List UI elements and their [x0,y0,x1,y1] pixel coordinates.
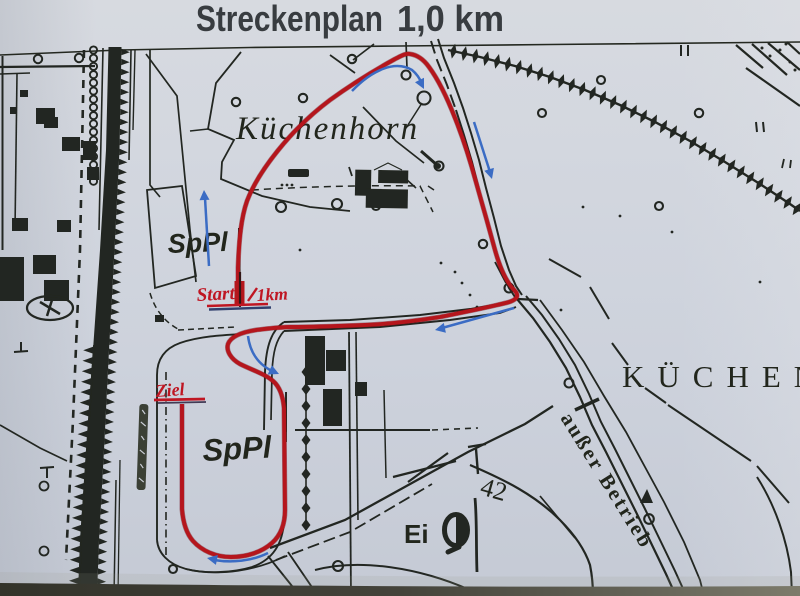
svg-text:KÜCHEN: KÜCHEN [622,359,800,394]
svg-text:SpPl: SpPl [167,227,229,259]
svg-text:Ziel: Ziel [154,379,185,401]
svg-text:Küchenhorn: Küchenhorn [235,111,419,147]
svg-text:Ei: Ei [404,519,429,549]
svg-text:Streckenplan: Streckenplan [196,0,383,39]
svg-text:1km: 1km [256,283,288,305]
svg-text:1,0 km: 1,0 km [397,0,504,39]
svg-text:Start: Start [196,283,236,306]
svg-text:SpPl: SpPl [202,429,274,468]
